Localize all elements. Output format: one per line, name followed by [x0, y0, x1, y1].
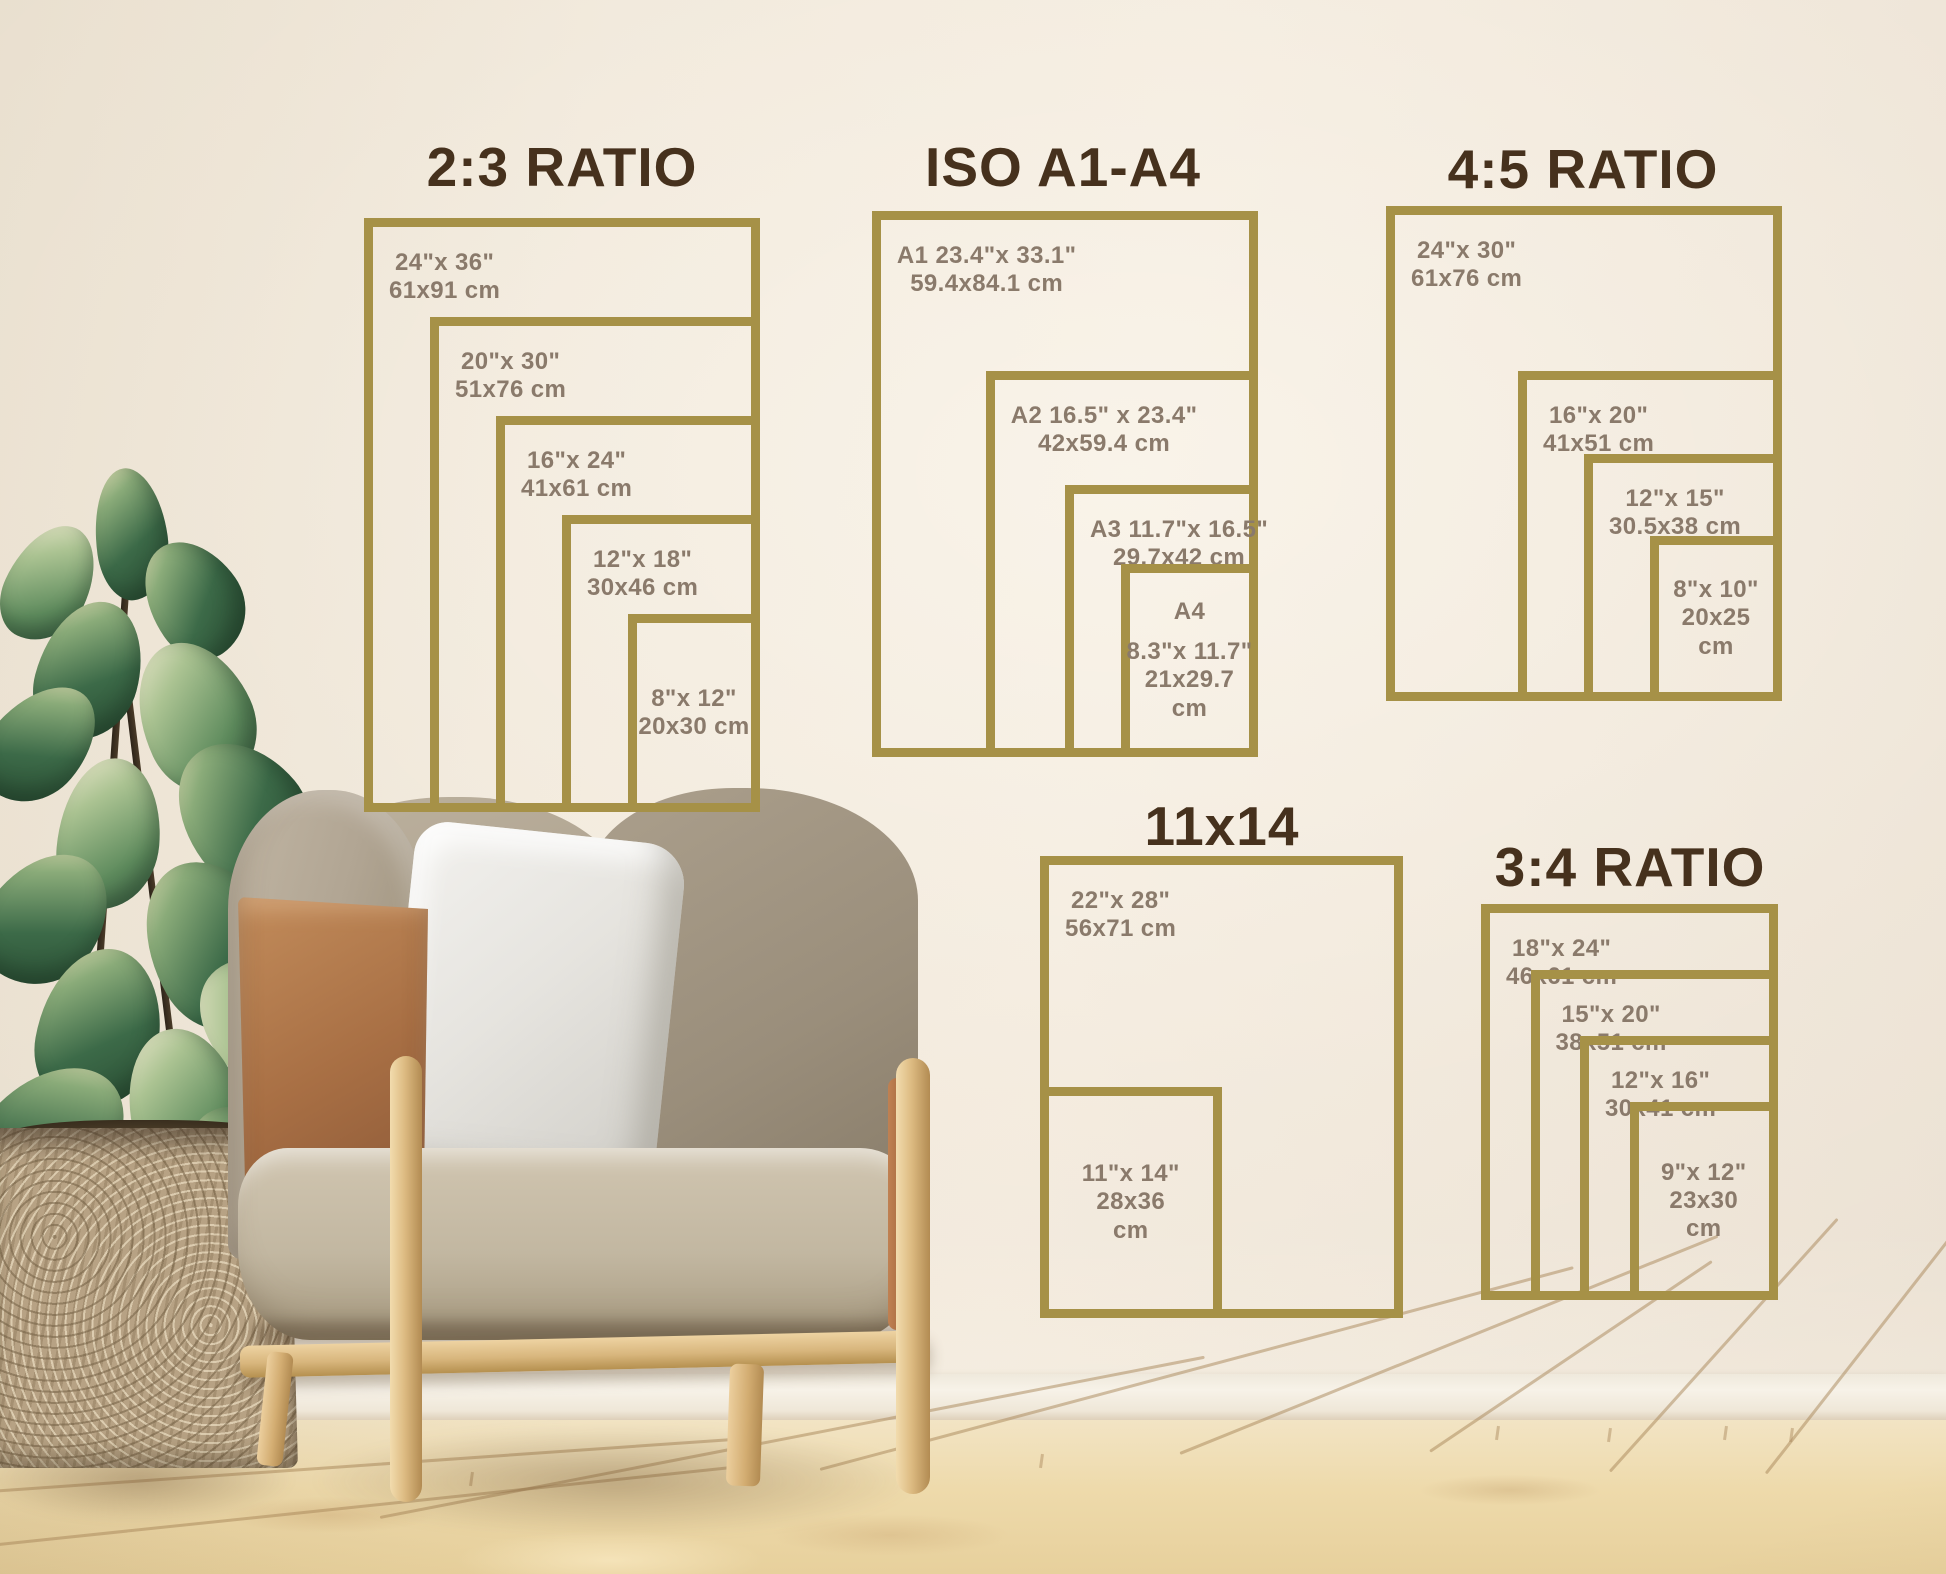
size-label: 22"x 28"56x71 cm — [1065, 887, 1176, 944]
size-label: 16"x 24"41x61 cm — [521, 447, 632, 504]
size-label-line: 8.3"x 11.7" — [1127, 638, 1253, 666]
plank-joint — [1495, 1426, 1500, 1440]
group-title-4-5-ratio: 4:5 RATIO — [1448, 137, 1719, 201]
size-label: 8"x 10"20x25cm — [1659, 545, 1773, 692]
size-label-line: 23x30 — [1669, 1187, 1738, 1215]
size-rect-11x14: 11"x 14"28x36cm — [1040, 1087, 1222, 1318]
size-label-line: 8"x 10" — [1673, 576, 1759, 604]
size-label-line: 61x91 cm — [389, 277, 500, 305]
size-label: 24"x 36"61x91 cm — [389, 249, 500, 306]
size-label: 12"x 18"30x46 cm — [587, 546, 698, 603]
size-label: 16"x 20"41x51 cm — [1543, 402, 1654, 459]
size-label: A48.3"x 11.7"21x29.7cm — [1130, 573, 1249, 748]
size-label-line: 20"x 30" — [455, 348, 566, 376]
size-label: A1 23.4"x 33.1"59.4x84.1 cm — [897, 242, 1077, 299]
size-label-line: 56x71 cm — [1065, 915, 1176, 943]
size-label-line: 59.4x84.1 cm — [897, 270, 1077, 298]
size-label: 9"x 12"23x30cm — [1639, 1111, 1770, 1291]
group-title-iso-a1-a4: ISO A1-A4 — [925, 135, 1201, 199]
size-label-line: 8"x 12" — [651, 685, 737, 713]
size-label-line: 16"x 20" — [1543, 402, 1654, 430]
size-label-line: 12"x 18" — [587, 546, 698, 574]
size-label: 20"x 30"51x76 cm — [455, 348, 566, 405]
size-label: 8"x 12"20x30 cm — [637, 623, 751, 803]
size-rect-9x12: 9"x 12"23x30cm — [1630, 1102, 1779, 1300]
size-label-line: 20x25 — [1682, 604, 1751, 632]
size-label-line: 61x76 cm — [1411, 265, 1522, 293]
size-label-line: A3 11.7"x 16.5" — [1090, 516, 1268, 544]
size-label-line: 24"x 30" — [1411, 237, 1522, 265]
size-label-line: cm — [1698, 633, 1734, 661]
plank-joint — [1723, 1426, 1728, 1440]
size-label-line: 11"x 14" — [1082, 1160, 1180, 1188]
chair-shadow — [265, 1418, 965, 1558]
group-title-2-3-ratio: 2:3 RATIO — [427, 135, 698, 199]
wood-leg — [726, 1363, 764, 1486]
size-label-line: 42x59.4 cm — [1011, 430, 1198, 458]
chair-seat-cushion — [238, 1148, 922, 1340]
size-label-line: 12"x 15" — [1609, 485, 1741, 513]
size-label: 24"x 30"61x76 cm — [1411, 237, 1522, 294]
size-rect-8.3x11.7: A48.3"x 11.7"21x29.7cm — [1121, 564, 1258, 757]
size-label-line: A1 23.4"x 33.1" — [897, 242, 1077, 270]
size-label-line: 22"x 28" — [1065, 887, 1176, 915]
size-label-line: 28x36 — [1096, 1188, 1165, 1216]
size-rect-8x10: 8"x 10"20x25cm — [1650, 536, 1782, 701]
size-label-line: A2 16.5" x 23.4" — [1011, 402, 1198, 430]
size-label-line: 20x30 cm — [638, 713, 749, 741]
size-label-line: 16"x 24" — [521, 447, 632, 475]
size-label: 12"x 15"30.5x38 cm — [1609, 485, 1741, 542]
size-label: A2 16.5" x 23.4"42x59.4 cm — [1011, 402, 1198, 459]
size-label-line: cm — [1172, 695, 1208, 723]
size-label-line: 18"x 24" — [1506, 935, 1617, 963]
group-title-3-4-ratio: 3:4 RATIO — [1495, 835, 1766, 899]
plank-joint — [1607, 1428, 1612, 1442]
room-scene: 2:3 RATIO ISO A1-A4 4:5 RATIO 11x14 3:4 … — [0, 0, 1946, 1574]
size-label-line: cm — [1686, 1215, 1722, 1243]
size-label-line: 51x76 cm — [455, 376, 566, 404]
plank-joint — [1039, 1454, 1044, 1468]
size-label-line: 21x29.7 — [1145, 666, 1235, 694]
wood-frame-post — [390, 1056, 422, 1502]
size-rect-8x12: 8"x 12"20x30 cm — [628, 614, 760, 812]
size-label-line: cm — [1113, 1217, 1149, 1245]
size-label-line: 15"x 20" — [1556, 1001, 1667, 1029]
size-label-line: 12"x 16" — [1605, 1067, 1716, 1095]
size-label: 11"x 14"28x36cm — [1049, 1096, 1213, 1309]
wood-frame-post — [896, 1058, 930, 1494]
size-label-line: 30x46 cm — [587, 574, 698, 602]
size-label-line: 9"x 12" — [1661, 1159, 1747, 1187]
size-label-line: A4 — [1174, 598, 1205, 626]
group-title-11x14: 11x14 — [1145, 794, 1300, 858]
size-label-line: 41x61 cm — [521, 475, 632, 503]
size-label-line: 24"x 36" — [389, 249, 500, 277]
